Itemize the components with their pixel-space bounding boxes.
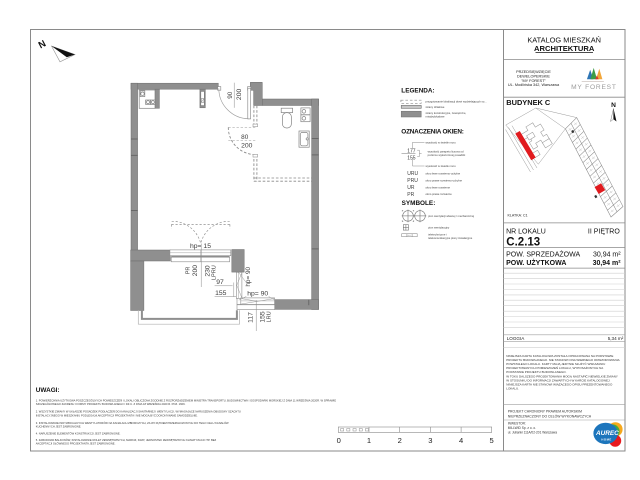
svg-text:teletechniczne i: teletechniczne i	[428, 232, 447, 236]
svg-text:NINIEJSZA KARTA NIE STANOWI WI: NINIEJSZA KARTA NIE STANOWI WIĄŻĄCEGO OP…	[506, 382, 613, 387]
svg-text:hp= 90: hp= 90	[247, 290, 268, 297]
svg-text:4. NARUSZENIE ELEMENTÓW KONSTR: 4. NARUSZENIE ELEMENTÓW KONSTRUKCJI JEST…	[36, 430, 121, 435]
svg-text:DEWELOPERSKIE: DEWELOPERSKIE	[517, 74, 550, 78]
svg-text:okno prawe rozwierno-uchylne: okno prawe rozwierno-uchylne	[426, 178, 463, 182]
svg-text:PR: PR	[186, 267, 192, 275]
svg-text:PROJEKT CHRONIONY PRAWEM AUTOR: PROJEKT CHRONIONY PRAWEM AUTORSKIM	[508, 410, 582, 414]
svg-text:200: 200	[236, 89, 243, 101]
svg-text:C.2.13: C.2.13	[506, 237, 540, 249]
svg-text:N: N	[611, 102, 616, 109]
svg-text:UR: UR	[407, 185, 415, 191]
svg-text:155: 155	[215, 290, 227, 297]
svg-text:HOME: HOME	[601, 437, 611, 441]
svg-text:międzylokalowe: międzylokalowe	[426, 115, 445, 119]
svg-text:1. POWIERZCHNIA UŻYTKOWA POSZC: 1. POWIERZCHNIA UŻYTKOWA POSZCZEGÓLNYCH …	[36, 397, 336, 402]
svg-text:97: 97	[216, 279, 224, 286]
svg-text:SYMBOLE:: SYMBOLE:	[402, 200, 436, 207]
svg-text:LOGGIA: LOGGIA	[507, 336, 526, 341]
svg-text:przygotowanie lokalizacji drzw: przygotowanie lokalizacji drzwi wydziela…	[426, 100, 487, 104]
svg-text:2: 2	[398, 436, 402, 445]
svg-text:30,94 m²: 30,94 m²	[593, 260, 622, 267]
svg-text:MY FOREST: MY FOREST	[571, 84, 617, 91]
svg-text:II PIĘTRO: II PIĘTRO	[588, 229, 620, 236]
svg-text:NIEPRZEZNACZONY DO CELÓW WYKON: NIEPRZEZNACZONY DO CELÓW WYKONAWCZYCH	[508, 413, 592, 418]
svg-text:3. INSTALOWANIE INDYWIDUALNYCH: 3. INSTALOWANIE INDYWIDUALNYCH WENTYLATO…	[36, 420, 229, 425]
svg-text:200: 200	[192, 265, 199, 277]
svg-text:5,34 m²: 5,34 m²	[608, 336, 624, 341]
svg-text:ściany działowe: ściany działowe	[426, 105, 445, 109]
svg-text:ściany konstrukcyjne, zewnętrz: ściany konstrukcyjne, zewnętrzne,	[426, 111, 467, 115]
svg-text:pion wentylacji własnej / mech: pion wentylacji własnej / mechanicznej	[428, 214, 474, 218]
svg-text:0: 0	[337, 436, 341, 445]
svg-text:OZNACZENIA OKIEN:: OZNACZENIA OKIEN:	[401, 129, 463, 136]
svg-text:POW. SPRZEDAŻOWA: POW. SPRZEDAŻOWA	[506, 249, 580, 258]
svg-text:telekomunikacyjne piony instal: telekomunikacyjne piony instalacyjne	[428, 236, 473, 240]
svg-text:MILLWID Sp. z o. o.: MILLWID Sp. z o. o.	[508, 426, 536, 430]
svg-text:KATALOG MIESZKAŃ: KATALOG MIESZKAŃ	[527, 36, 601, 45]
svg-text:230: 230	[204, 265, 211, 277]
svg-text:POW. UŻYTKOWA: POW. UŻYTKOWA	[506, 259, 566, 267]
svg-text:80: 80	[241, 134, 249, 141]
svg-text:okno lewe rozwierno-uchylne: okno lewe rozwierno-uchylne	[426, 172, 461, 176]
svg-text:LRU: LRU	[266, 311, 272, 322]
svg-text:wysokość parapetu liczona od: wysokość parapetu liczona od	[428, 150, 464, 154]
svg-text:INWESTOR:: INWESTOR:	[508, 421, 526, 425]
svg-text:pion wentylacyjny: pion wentylacyjny	[428, 225, 450, 229]
svg-text:N: N	[37, 38, 48, 51]
svg-text:NR LOKALU: NR LOKALU	[506, 229, 546, 236]
svg-text:AUREC: AUREC	[595, 430, 619, 437]
svg-text:1: 1	[367, 436, 371, 445]
svg-text:"MY FOREST": "MY FOREST"	[521, 79, 546, 83]
svg-text:poziomu wykończonej posadzki: poziomu wykończonej posadzki	[428, 153, 466, 157]
svg-text:ARCHITEKTURA: ARCHITEKTURA	[534, 44, 595, 53]
svg-text:ul. Julianki 111A/02-201 Warsz: ul. Julianki 111A/02-201 Warszawa	[508, 430, 557, 434]
svg-text:hp= 15: hp= 15	[190, 243, 211, 250]
svg-text:PRZEDSIĘWZIĘCIE: PRZEDSIĘWZIĘCIE	[516, 70, 551, 74]
svg-text:117: 117	[247, 312, 254, 323]
svg-text:KUCHENNYCH JEST ZABRONIONE.: KUCHENNYCH JEST ZABRONIONE.	[36, 425, 82, 429]
svg-text:5. ZABUDOWA BALKONÓW, INSTALOW: 5. ZABUDOWA BALKONÓW, INSTALOWANIE ROLET…	[36, 437, 217, 442]
svg-text:hp= 90: hp= 90	[245, 266, 252, 286]
svg-text:30,94 m²: 30,94 m²	[593, 251, 621, 258]
svg-text:BUDYNEK C: BUDYNEK C	[506, 98, 551, 107]
svg-text:90: 90	[227, 91, 234, 99]
svg-text:wysokość w świetle muru: wysokość w świetle muru	[426, 140, 457, 144]
svg-text:KLATKA: C1: KLATKA: C1	[508, 214, 528, 218]
svg-text:200: 200	[241, 143, 253, 150]
svg-text:5: 5	[489, 436, 493, 445]
svg-text:155: 155	[407, 156, 416, 162]
svg-text:4: 4	[459, 436, 463, 445]
svg-text:3: 3	[428, 436, 432, 445]
svg-text:wysokość w świetle muru: wysokość w świetle muru	[426, 164, 457, 168]
svg-text:LOKALU.: LOKALU.	[506, 387, 519, 391]
svg-text:2. WSZYSTKIE ZMIANY W UKŁADZIE: 2. WSZYSTKIE ZMIANY W UKŁADZIE POSADZEK …	[36, 410, 241, 414]
svg-text:LEGENDA:: LEGENDA:	[401, 88, 434, 95]
svg-text:155: 155	[259, 311, 266, 323]
svg-text:UWAGI:: UWAGI:	[36, 387, 60, 394]
svg-text:okno lewe rozwierne: okno lewe rozwierne	[426, 185, 451, 189]
svg-text:URU: URU	[407, 171, 418, 177]
svg-text:okno prawe rozwierne: okno prawe rozwierne	[426, 192, 453, 196]
svg-text:PR: PR	[407, 192, 414, 198]
svg-text:PRU: PRU	[407, 178, 418, 184]
svg-text:UL. Modlińska 342, Warszawa: UL. Modlińska 342, Warszawa	[508, 83, 560, 87]
